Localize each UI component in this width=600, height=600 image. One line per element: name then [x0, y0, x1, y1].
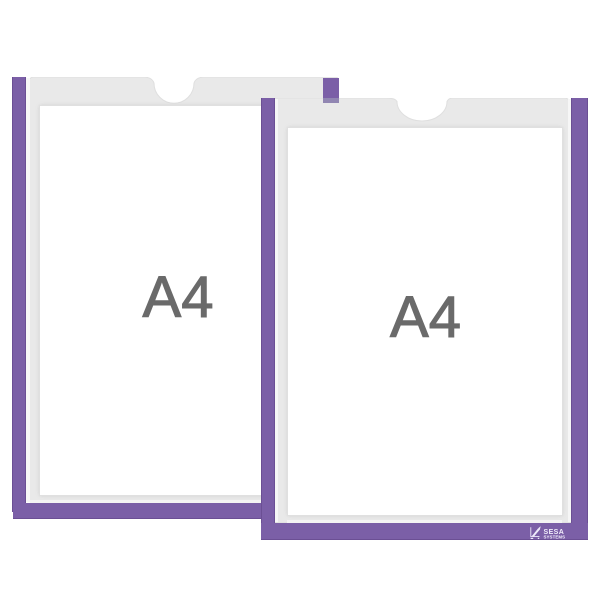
svg-text:SYSTEMS: SYSTEMS: [544, 535, 566, 540]
